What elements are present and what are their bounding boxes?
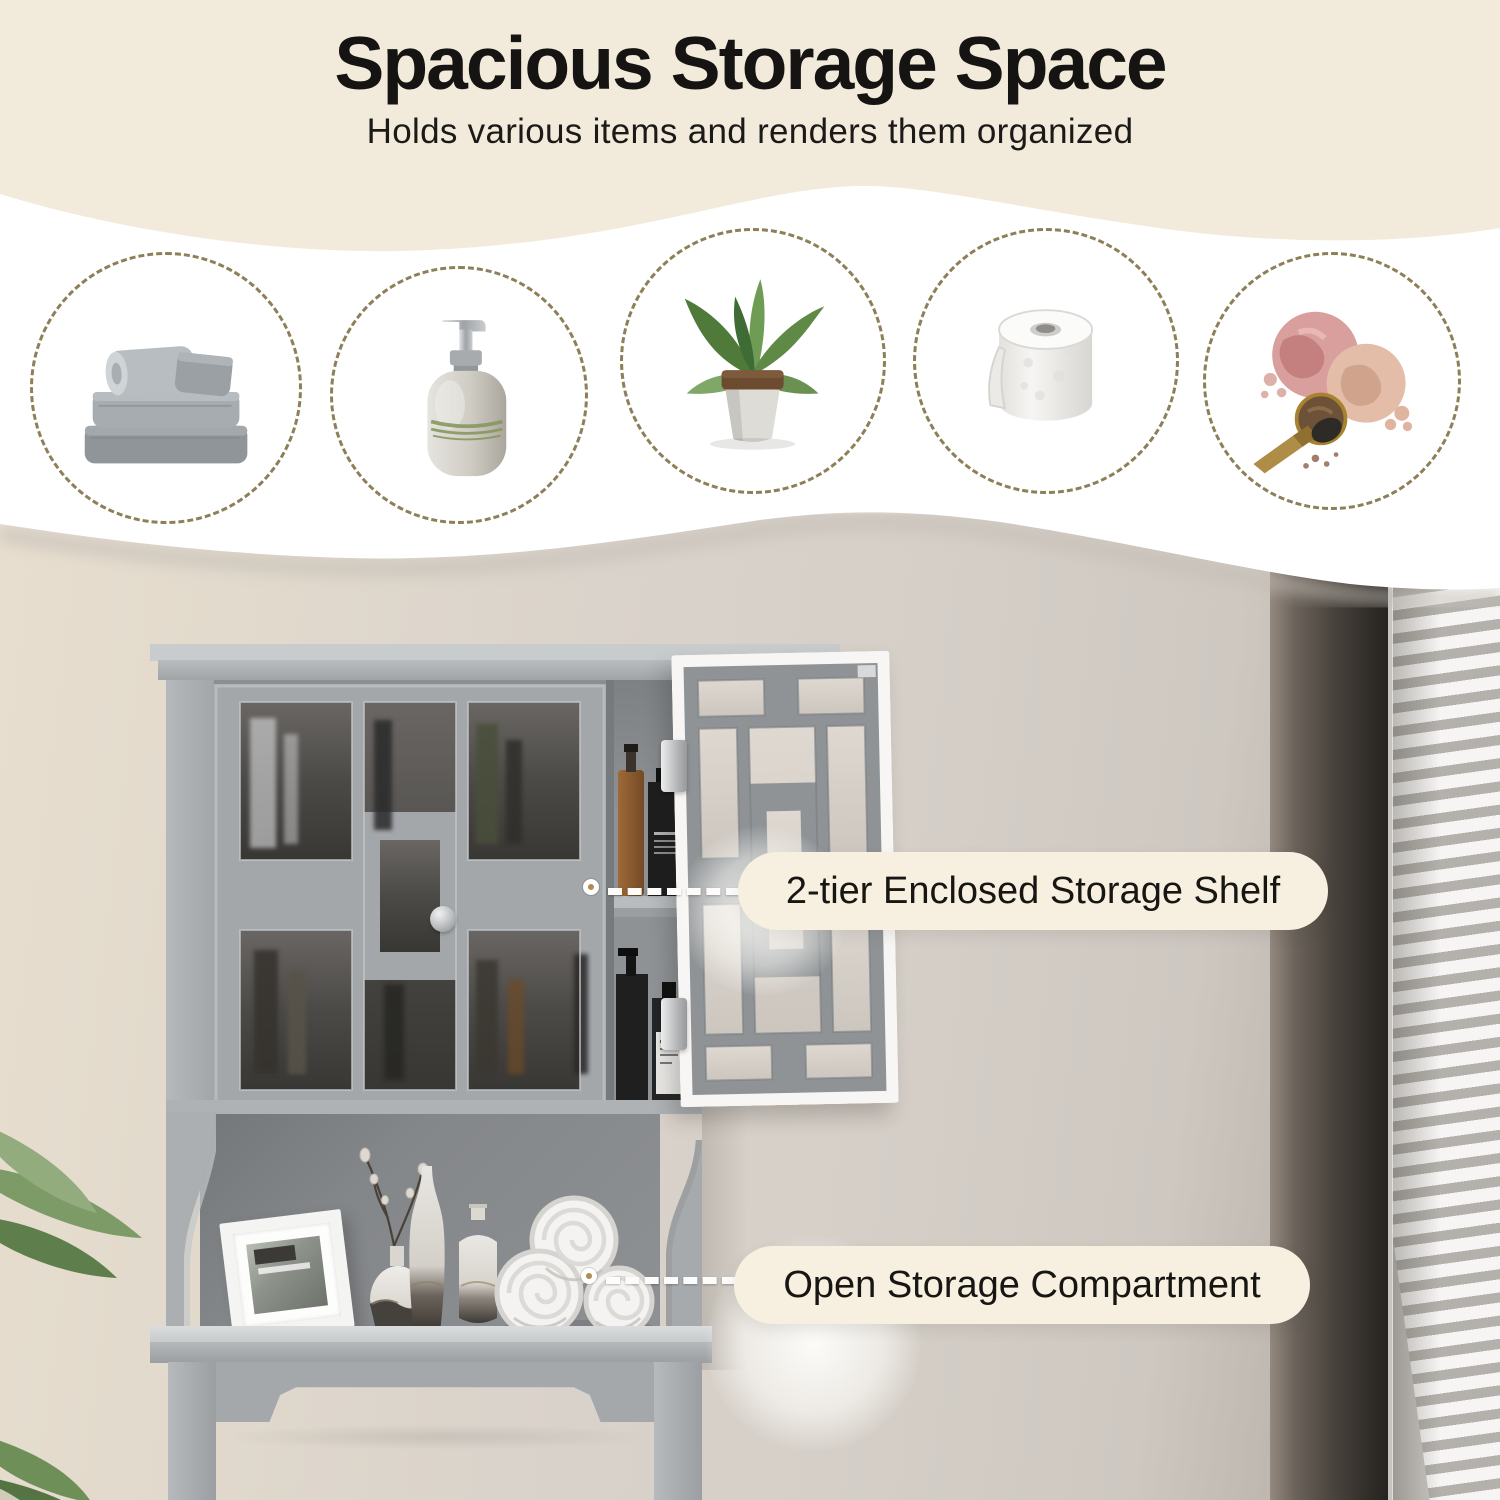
towels-icon [57,279,275,497]
callout-dot-1 [583,879,599,895]
hutch-table-top [150,1326,712,1343]
rolled-towels [492,1194,664,1336]
callout-shelf-label: 2-tier Enclosed Storage Shelf [738,852,1328,930]
door-gap [606,680,614,1112]
door-knob [430,906,456,932]
picture-frame [219,1209,354,1341]
soap-dispenser-icon [356,292,563,499]
makeup-icon [1229,278,1436,485]
floor-shadow [216,1424,656,1450]
hutch-bracket-left [166,1112,216,1332]
product-photo: 2-tier Enclosed Storage Shelf Open Stora… [0,0,1500,1500]
feature-circle-towels [30,252,302,524]
toilet-paper-icon [939,254,1152,467]
callout-shelf-text: 2-tier Enclosed Storage Shelf [786,870,1280,913]
hutch-leg-right [654,1362,702,1500]
window-blinds [1392,0,1500,1500]
callout-dot-2 [581,1268,597,1284]
callout-connector-2 [606,1277,736,1284]
page-subtitle: Holds various items and renders them org… [0,112,1500,152]
door-hinge-top [661,740,687,792]
cabinet-left-door [214,684,606,1108]
potted-plant-icon [646,254,859,467]
feature-circle-toilet-paper [913,228,1179,494]
page-title: Spacious Storage Space [0,20,1500,106]
feature-circle-makeup [1203,252,1461,510]
ceramic-vase-tall [402,1166,452,1332]
callout-compartment-label: Open Storage Compartment [734,1246,1310,1324]
hutch-table-edge [150,1342,712,1363]
callout-compartment-text: Open Storage Compartment [783,1264,1260,1307]
cabinet-bottom-rail [166,1100,702,1114]
hutch-leg-left [168,1362,216,1500]
callout-connector-1 [608,888,740,895]
cabinet-left-stile [166,680,214,1112]
window-frame-edge [1388,0,1393,1500]
door-hinge-bottom [661,998,687,1050]
product-infographic: 2-tier Enclosed Storage Shelf Open Stora… [0,0,1500,1500]
feature-circle-plant [620,228,886,494]
feature-circle-soap [330,266,588,524]
